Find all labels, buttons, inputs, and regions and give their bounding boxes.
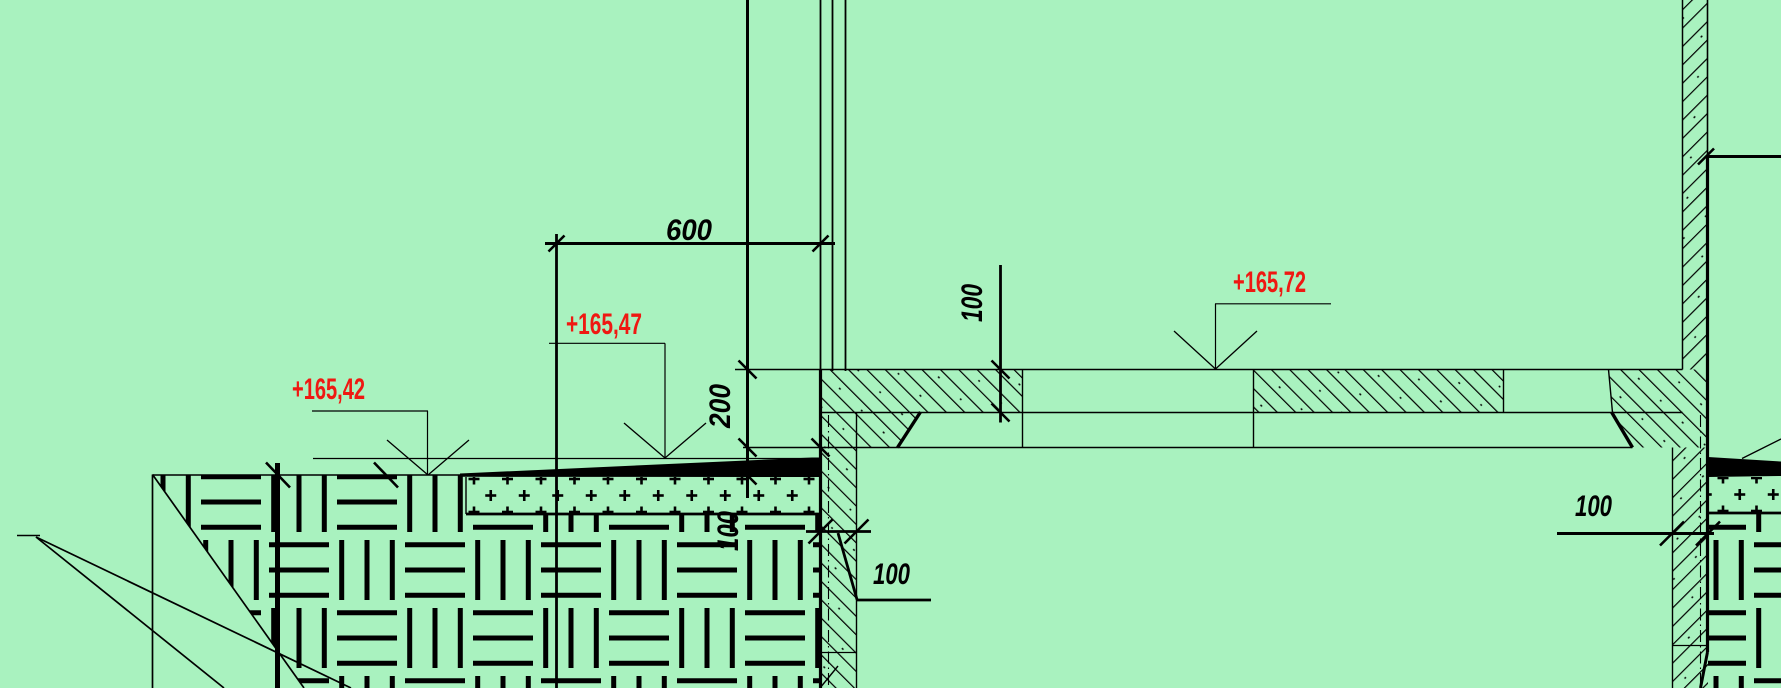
svg-text:+165,47: +165,47 xyxy=(566,308,642,341)
svg-text:100: 100 xyxy=(1575,490,1612,523)
svg-text:+165,72: +165,72 xyxy=(1233,266,1306,299)
svg-text:100: 100 xyxy=(956,284,989,322)
svg-text:+165,42: +165,42 xyxy=(292,373,365,406)
svg-text:100: 100 xyxy=(712,511,745,551)
svg-text:600: 600 xyxy=(666,214,712,247)
svg-text:200: 200 xyxy=(704,384,737,429)
svg-text:100: 100 xyxy=(873,558,910,591)
